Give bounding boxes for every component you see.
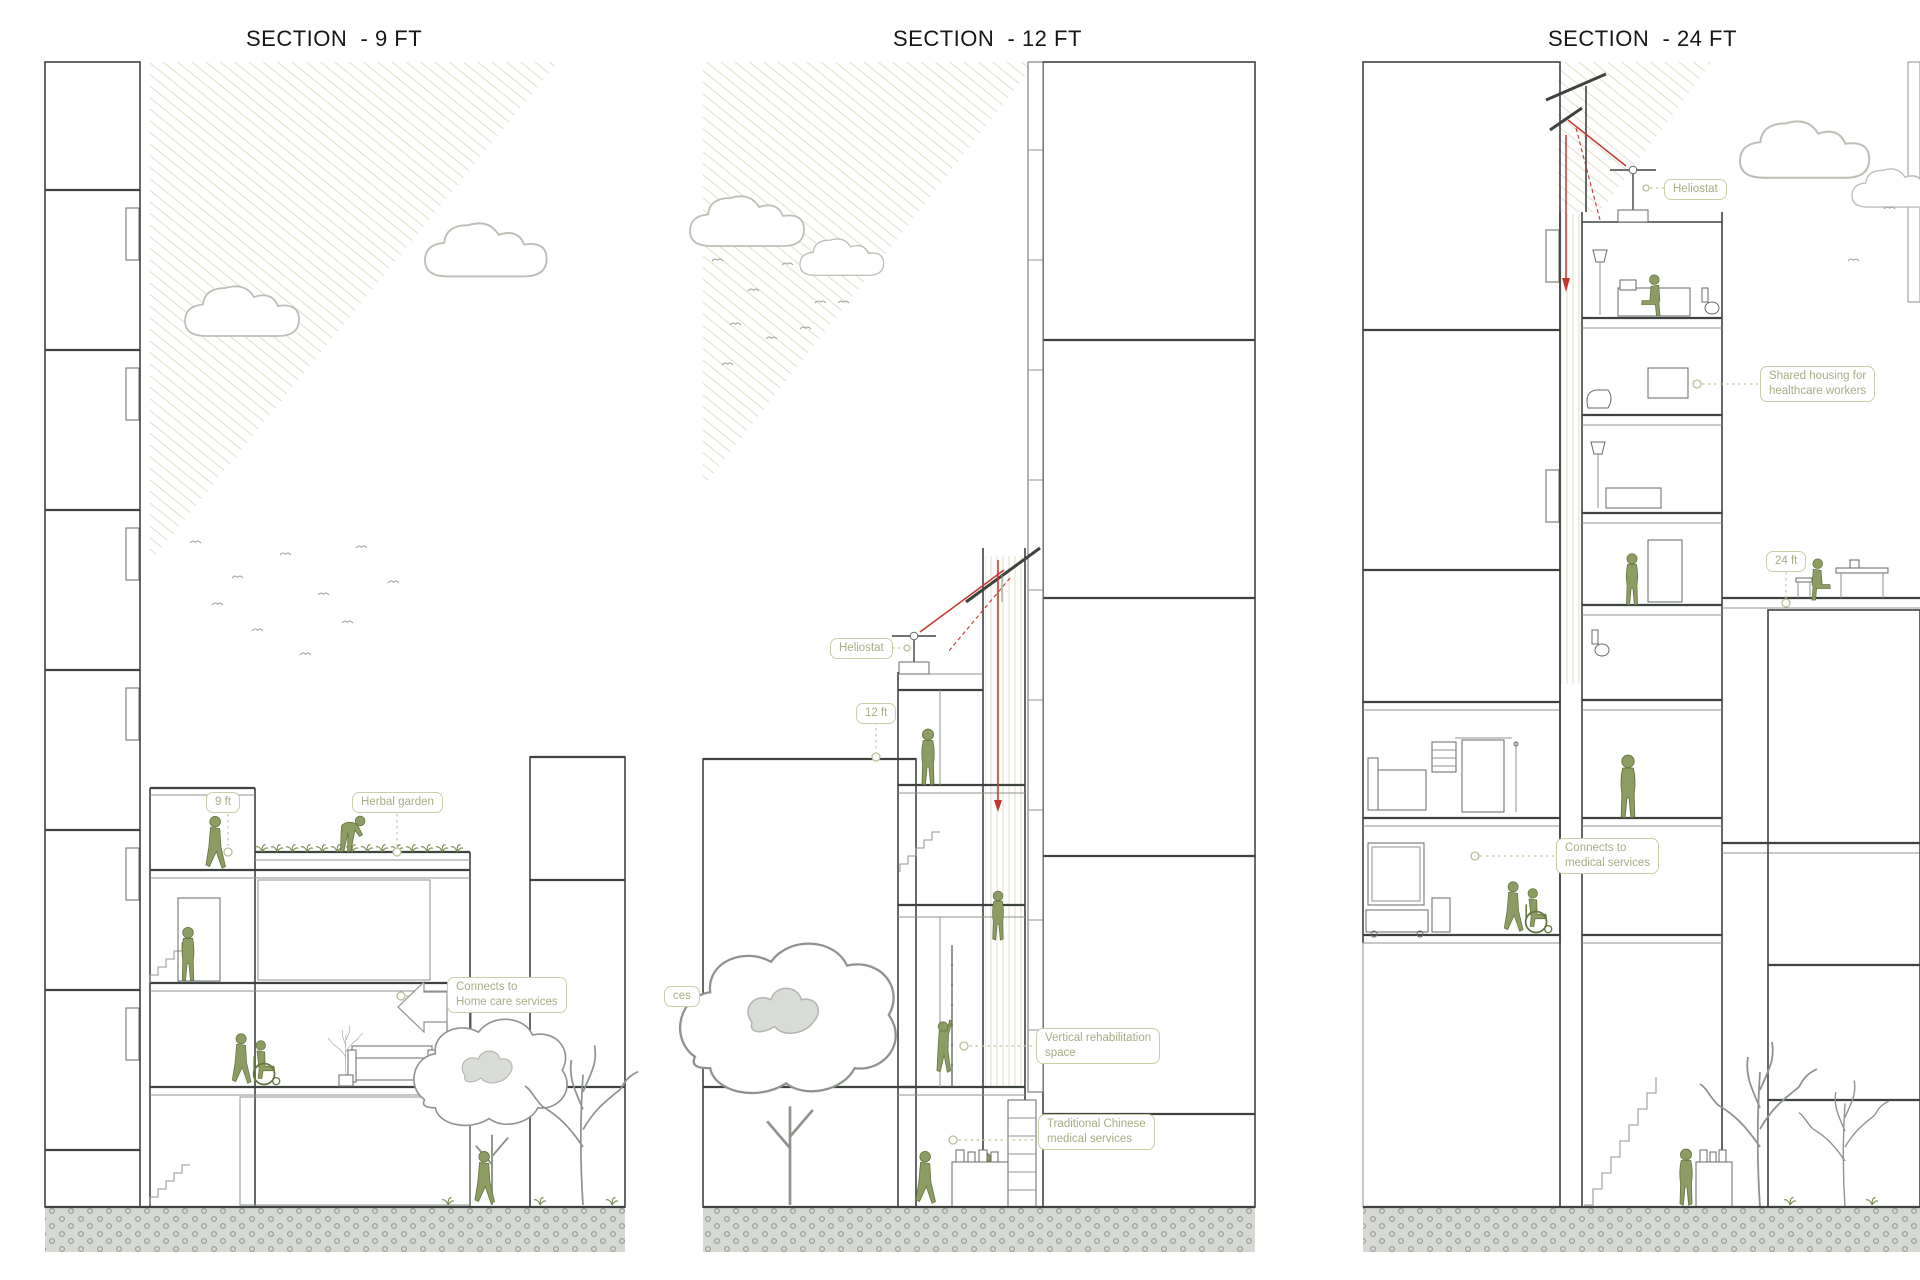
architectural-sections-board: SECTION - 9 FT SECTION - 12 FT SECTION -…: [0, 0, 1920, 1280]
figure-caregiver-icon: [232, 1034, 251, 1084]
heliostat-label-12ft: Heliostat: [830, 638, 893, 659]
cloud-icon: [1740, 121, 1869, 177]
ground: [45, 1207, 625, 1252]
figure-standing-icon: [1626, 554, 1637, 605]
heliostat-label-24ft: Heliostat: [1664, 179, 1727, 200]
section-24ft-title: SECTION - 24 FT: [1548, 26, 1737, 52]
clipped-label: ces: [664, 986, 700, 1007]
figure-walking-icon: [916, 1151, 936, 1203]
figure-standing-icon: [182, 927, 194, 981]
height-marker-9ft: 9 ft: [206, 792, 240, 813]
sections-drawing: [0, 0, 1920, 1280]
right-block: [1722, 62, 1920, 1207]
tower-left: [45, 62, 140, 1207]
panel-9ft: [45, 62, 638, 1252]
rehab-space-label: Vertical rehabilitation space: [1036, 1028, 1160, 1064]
figure-standing-icon: [1621, 755, 1635, 818]
trees: [414, 1019, 638, 1205]
figure-seated-at-table-icon: [1812, 559, 1830, 600]
connection-arrow-icon: [398, 982, 447, 1032]
figure-caregiver-icon: [1504, 882, 1523, 932]
section-12ft-title: SECTION - 12 FT: [893, 26, 1082, 52]
figure-wheelchair-icon: [254, 1041, 280, 1085]
figure-wheelchair-icon: [1526, 889, 1552, 933]
height-marker-24ft: 24 ft: [1766, 551, 1806, 572]
herbal-garden-label: Herbal garden: [352, 792, 443, 813]
cloud-icon: [425, 223, 547, 276]
figure-climbing-icon: [937, 1020, 952, 1072]
ground: [703, 1207, 1255, 1252]
pharmacy-fittings: [952, 1100, 1036, 1207]
ground: [1363, 1207, 1920, 1252]
height-marker-12ft: 12 ft: [856, 703, 896, 724]
figure-standing-icon: [922, 729, 934, 785]
birds: [190, 541, 399, 655]
panel-12ft: [680, 62, 1255, 1252]
potted-plant: [339, 1075, 353, 1086]
armchair-icon: [1587, 390, 1611, 408]
hospital-floors: [1363, 702, 1560, 1207]
tcm-label: Traditional Chinese medical services: [1038, 1114, 1155, 1150]
shared-housing-label: Shared housing for healthcare workers: [1760, 366, 1875, 402]
tower-left: [1363, 62, 1560, 702]
clouds: [1740, 121, 1920, 261]
figure-walking-icon: [206, 816, 226, 868]
home-care-label: Connects to Home care services: [447, 977, 567, 1013]
tree-icon: [414, 1019, 567, 1205]
panel-24ft: [1363, 62, 1920, 1252]
figure-at-counter-icon: [1680, 1149, 1692, 1205]
medical-services-label: Connects to medical services: [1556, 838, 1659, 874]
housing-tower: [1582, 166, 1732, 1207]
section-9ft-title: SECTION - 9 FT: [246, 26, 422, 52]
tree-icon: [680, 944, 896, 1205]
